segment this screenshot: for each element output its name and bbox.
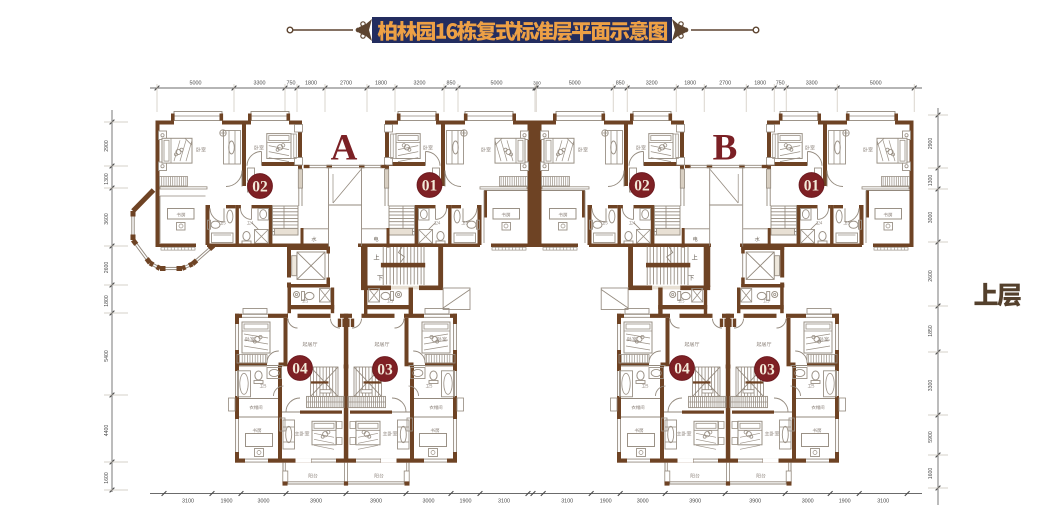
svg-text:2700: 2700 xyxy=(340,81,352,87)
svg-text:1900: 1900 xyxy=(460,499,472,505)
svg-text:3000: 3000 xyxy=(258,499,270,505)
svg-text:3000: 3000 xyxy=(928,212,934,224)
svg-text:5900: 5900 xyxy=(928,431,934,443)
svg-text:1800: 1800 xyxy=(305,81,317,87)
svg-text:04: 04 xyxy=(292,360,308,377)
svg-text:3900: 3900 xyxy=(310,499,322,505)
svg-text:1600: 1600 xyxy=(104,472,110,484)
svg-text:850: 850 xyxy=(616,81,625,87)
svg-text:3100: 3100 xyxy=(182,499,194,505)
svg-text:750: 750 xyxy=(776,81,785,87)
svg-text:4400: 4400 xyxy=(104,425,110,437)
svg-text:1600: 1600 xyxy=(928,468,934,480)
svg-text:3000: 3000 xyxy=(637,499,649,505)
svg-text:3600: 3600 xyxy=(104,213,110,225)
svg-text:5000: 5000 xyxy=(569,81,581,87)
svg-text:2900: 2900 xyxy=(928,138,934,150)
svg-text:3900: 3900 xyxy=(689,499,701,505)
svg-text:3200: 3200 xyxy=(646,81,658,87)
svg-text:03: 03 xyxy=(377,361,393,378)
svg-text:5000: 5000 xyxy=(190,81,202,87)
svg-text:02: 02 xyxy=(252,178,268,195)
svg-text:B: B xyxy=(713,128,738,169)
svg-text:1800: 1800 xyxy=(754,81,766,87)
svg-text:750: 750 xyxy=(287,81,296,87)
svg-text:3900: 3900 xyxy=(749,499,761,505)
svg-text:1900: 1900 xyxy=(600,499,612,505)
svg-text:3100: 3100 xyxy=(498,499,510,505)
svg-text:01: 01 xyxy=(804,177,820,194)
svg-text:300: 300 xyxy=(533,81,541,86)
svg-text:1800: 1800 xyxy=(104,295,110,307)
svg-text:1300: 1300 xyxy=(104,173,110,185)
svg-text:1900: 1900 xyxy=(839,499,851,505)
svg-text:1800: 1800 xyxy=(684,81,696,87)
svg-text:2600: 2600 xyxy=(104,262,110,274)
svg-text:04: 04 xyxy=(674,360,690,377)
svg-text:02: 02 xyxy=(634,177,650,194)
svg-text:5000: 5000 xyxy=(491,81,503,87)
svg-text:3000: 3000 xyxy=(423,499,435,505)
svg-text:1800: 1800 xyxy=(375,81,387,87)
svg-text:1850: 1850 xyxy=(928,325,934,337)
svg-text:5000: 5000 xyxy=(870,81,882,87)
svg-text:2900: 2900 xyxy=(104,140,110,152)
svg-text:3300: 3300 xyxy=(254,81,266,87)
svg-text:3300: 3300 xyxy=(928,380,934,392)
svg-text:850: 850 xyxy=(447,81,456,87)
svg-text:3000: 3000 xyxy=(802,499,814,505)
svg-text:03: 03 xyxy=(759,361,775,378)
svg-text:3200: 3200 xyxy=(414,81,426,87)
svg-text:2700: 2700 xyxy=(719,81,731,87)
svg-text:3900: 3900 xyxy=(370,499,382,505)
svg-text:2600: 2600 xyxy=(928,270,934,282)
svg-text:A: A xyxy=(331,128,358,169)
svg-text:1300: 1300 xyxy=(928,175,934,187)
svg-text:1900: 1900 xyxy=(221,499,233,505)
svg-text:01: 01 xyxy=(422,177,438,194)
svg-text:3100: 3100 xyxy=(877,499,889,505)
svg-text:5400: 5400 xyxy=(104,350,110,362)
svg-text:3300: 3300 xyxy=(806,81,818,87)
svg-text:3100: 3100 xyxy=(561,499,573,505)
